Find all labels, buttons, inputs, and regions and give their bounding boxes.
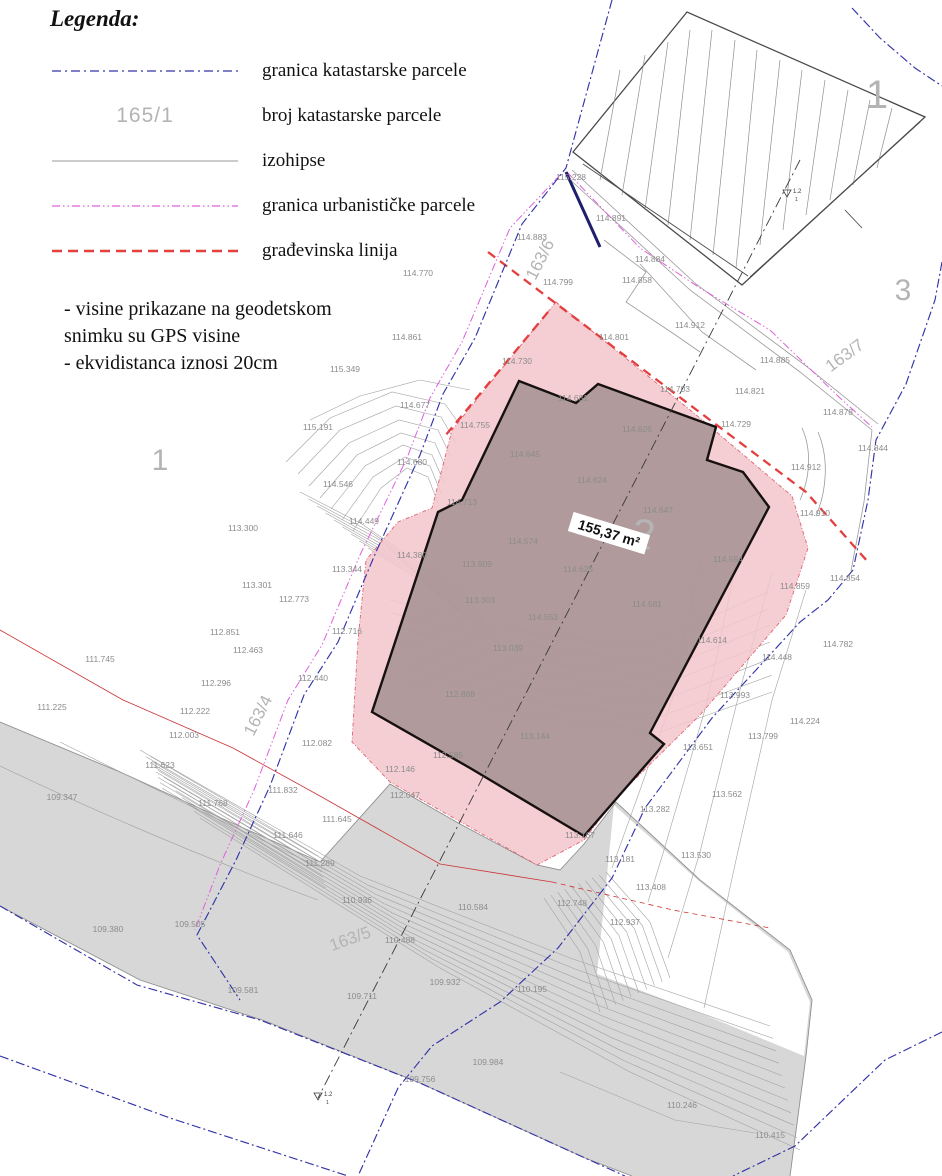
legend-item-0: granica katastarske parcele: [50, 56, 475, 86]
map-label: 114.885: [760, 355, 790, 365]
map-label: 113.530: [681, 850, 711, 860]
map-label: 114.647: [643, 505, 673, 515]
legend: Legenda: granica katastarske parcele165/…: [50, 6, 475, 281]
map-label: 112.296: [201, 678, 231, 688]
map-label: 114.883: [517, 232, 547, 242]
solid-line-icon: [50, 156, 240, 166]
legend-item-label: građevinska linija: [262, 240, 398, 262]
map-label: 109.347: [47, 792, 78, 802]
map-label: 113.144: [520, 731, 550, 741]
legend-items: granica katastarske parcele165/1broj kat…: [50, 56, 475, 266]
map-label: 114.861: [392, 332, 422, 342]
map-label: 112.146: [385, 764, 415, 774]
map-label: 112.716: [332, 626, 362, 636]
map-label: 114.713: [447, 497, 477, 507]
map-label: 114.553: [528, 612, 558, 622]
map-label: 113.909: [462, 559, 492, 569]
legend-item-1: 165/1broj katastarske parcele: [50, 101, 475, 131]
parcel-number-sample: 165/1: [50, 104, 240, 128]
map-label: 114.729: [721, 419, 751, 429]
map-label: 109.380: [93, 924, 124, 934]
map-label: 112.773: [279, 594, 309, 604]
map-label: 112.047: [390, 790, 420, 800]
map-label: 1.2: [793, 189, 802, 195]
map-label: 114.224: [790, 716, 820, 726]
map-label: 109.505: [175, 919, 206, 929]
map-label: 114.574: [508, 536, 538, 546]
map-label: 114.878: [823, 407, 853, 417]
map-label: 114.912: [791, 462, 821, 472]
map-label: 113.167: [565, 830, 595, 840]
map-label: 114.546: [323, 479, 353, 489]
map-label: 111.745: [85, 654, 115, 664]
map-label: 114.884: [635, 254, 665, 264]
map-label: 114.680: [397, 457, 427, 467]
map-label: 114.844: [858, 443, 888, 453]
legend-heading: Legenda:: [50, 6, 475, 32]
map-label: 114.554: [713, 554, 743, 564]
map-label: 109.711: [347, 991, 377, 1001]
map-label: 113.303: [465, 595, 495, 605]
map-label: 113.282: [640, 804, 670, 814]
map-label: 114.380: [397, 550, 427, 560]
map-label: 113.562: [712, 789, 742, 799]
map-label: 114.626: [622, 424, 652, 434]
map-label: 112.222: [180, 706, 210, 716]
map-label: 112.748: [557, 898, 587, 908]
map-label: 3: [895, 274, 912, 307]
map-label: 112.851: [210, 627, 240, 637]
legend-item-label: granica katastarske parcele: [262, 60, 467, 82]
note-line-1: - visine prikazane na geodetskom: [64, 296, 394, 323]
map-label: 114.858: [622, 275, 652, 285]
map-label: 114.821: [735, 386, 765, 396]
survey-notes: - visine prikazane na geodetskom snimku …: [64, 296, 394, 377]
legend-item-4: građevinska linija: [50, 236, 475, 266]
legend-item-label: izohipse: [262, 150, 325, 172]
map-label: 1: [326, 1100, 329, 1106]
note-line-2: snimku su GPS visine: [64, 323, 394, 350]
map-label: 1: [152, 444, 169, 477]
map-label: 110.584: [458, 902, 488, 912]
map-label: 111.225: [37, 702, 67, 712]
map-label: 114.755: [460, 420, 490, 430]
map-label: 114.677: [400, 400, 430, 410]
map-label: 112.585: [433, 750, 463, 760]
map-label: 114.859: [780, 581, 810, 591]
map-label: 111.768: [198, 798, 228, 808]
map-label: 110.246: [667, 1100, 697, 1110]
map-label: 113.039: [493, 643, 523, 653]
map-label: 114.703: [660, 384, 690, 394]
map-label: 113.300: [228, 523, 258, 533]
map-label: 114.912: [675, 320, 705, 330]
map-label: 114.614: [697, 635, 727, 645]
note-line-3: - ekvidistanca iznosi 20cm: [64, 350, 394, 377]
map-label: 112.463: [233, 645, 263, 655]
legend-item-label: granica urbanističke parcele: [262, 195, 475, 217]
map-label: 114.854: [830, 573, 860, 583]
map-label: 109.984: [473, 1057, 504, 1067]
map-label: 1.2: [324, 1092, 333, 1098]
map-label: 110.936: [342, 895, 372, 905]
map-label: 113.799: [748, 731, 778, 741]
map-label: 114.645: [510, 449, 540, 459]
map-label: 111.645: [322, 814, 352, 824]
map-label: 111.832: [268, 785, 298, 795]
map-label: 112.082: [302, 738, 332, 748]
map-label: 114.910: [800, 508, 830, 518]
map-label: 115.228: [556, 172, 586, 182]
map-label: 113.301: [242, 580, 272, 590]
map-label: 110.195: [517, 984, 547, 994]
map-label: 112.937: [610, 917, 640, 927]
map-label: 114.730: [502, 356, 532, 366]
map-label: 114.782: [823, 639, 853, 649]
map-label: 113.651: [683, 742, 713, 752]
map-label: 111.623: [145, 760, 175, 770]
dashed-line-icon: [50, 246, 240, 256]
map-label: 114.625: [563, 564, 593, 574]
map-label: 1: [866, 73, 888, 117]
dashdot-line-icon: [50, 66, 240, 76]
map-label: 114.799: [543, 277, 573, 287]
map-label: 110.488: [385, 935, 415, 945]
map-label: 114.581: [632, 599, 662, 609]
map-label: 109.756: [405, 1074, 436, 1084]
map-label: 115.191: [303, 422, 333, 432]
map-label: 112.868: [445, 689, 475, 699]
dashdotdot-line-icon: [50, 201, 240, 211]
map-label: 109.932: [430, 977, 461, 987]
map-label: 1: [795, 197, 798, 203]
map-label: 114.448: [762, 652, 792, 662]
map-label: 114.681: [558, 393, 588, 403]
legend-item-2: izohipse: [50, 146, 475, 176]
map-label: 114.891: [596, 213, 626, 223]
map-label: 112.003: [169, 730, 199, 740]
map-label: 113.344: [332, 564, 362, 574]
map-label: 109.581: [228, 985, 259, 995]
map-label: 113.408: [636, 882, 666, 892]
map-label: 114.624: [577, 475, 607, 485]
map-label: 113.181: [605, 854, 635, 864]
map-label: 113.993: [720, 690, 750, 700]
legend-item-label: broj katastarske parcele: [262, 105, 441, 127]
map-label: 114.449: [349, 516, 379, 526]
map-label: 111.289: [305, 858, 335, 868]
map-label: 110.415: [755, 1130, 785, 1140]
map-label: 111.646: [273, 830, 303, 840]
map-label: 112.440: [298, 673, 328, 683]
map-label: 114.801: [599, 332, 629, 342]
legend-item-3: granica urbanističke parcele: [50, 191, 475, 221]
